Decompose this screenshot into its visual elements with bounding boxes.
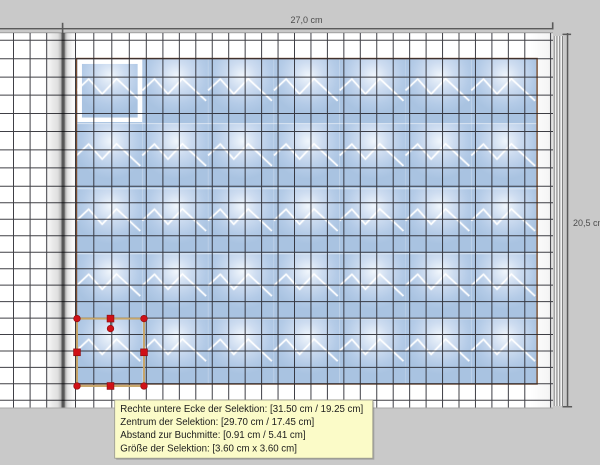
svg-text:Abstand zur Buchmitte: [0.91 c: Abstand zur Buchmitte: [0.91 cm / 5.41 c… bbox=[120, 430, 305, 441]
svg-text:Größe der Selektion: [3.60 cm: Größe der Selektion: [3.60 cm x 3.60 cm] bbox=[120, 443, 297, 454]
svg-text:Zentrum der Selektion: [29.70: Zentrum der Selektion: [29.70 cm / 17.45… bbox=[120, 417, 314, 428]
svg-text:20,5 cm: 20,5 cm bbox=[573, 218, 600, 228]
svg-text:27,0 cm: 27,0 cm bbox=[290, 15, 322, 25]
svg-text:Rechte untere Ecke der Selekti: Rechte untere Ecke der Selektion: [31.50… bbox=[120, 404, 363, 415]
